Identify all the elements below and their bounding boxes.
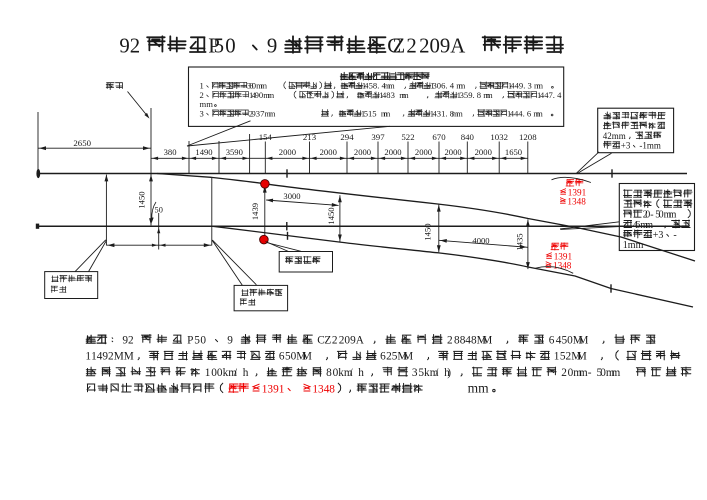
- svg-text:380: 380: [164, 147, 177, 157]
- svg-text:2000: 2000: [384, 147, 401, 157]
- svg-text:2000: 2000: [320, 147, 337, 157]
- svg-text:+3: +3: [621, 140, 631, 150]
- svg-text:2000: 2000: [279, 147, 296, 157]
- svg-text:46mm: 46mm: [633, 220, 654, 231]
- svg-text:1490: 1490: [195, 147, 212, 157]
- svg-text:3: 3: [200, 108, 204, 118]
- svg-text:1431.8mm: 1431.8mm: [430, 108, 463, 118]
- svg-text:P50: P50: [187, 334, 206, 346]
- svg-text:154: 154: [259, 132, 273, 142]
- svg-text:1439: 1439: [250, 203, 260, 220]
- svg-text:1435: 1435: [514, 233, 524, 250]
- svg-text:42mm: 42mm: [603, 131, 626, 141]
- svg-text:1348: 1348: [567, 196, 586, 206]
- svg-text:670: 670: [432, 132, 446, 142]
- svg-text:397: 397: [371, 132, 385, 142]
- svg-text:1483 mm: 1483 mm: [379, 90, 409, 100]
- svg-text:-1mm: -1mm: [639, 140, 661, 150]
- svg-text:2000: 2000: [475, 147, 492, 157]
- svg-text:1650: 1650: [505, 147, 522, 157]
- svg-text:3000: 3000: [283, 191, 300, 201]
- svg-text:92: 92: [119, 35, 140, 58]
- svg-text:2650: 2650: [73, 138, 91, 148]
- svg-text:+3: +3: [653, 230, 664, 241]
- svg-text:P50: P50: [208, 35, 235, 58]
- svg-text:2000: 2000: [354, 147, 371, 157]
- svg-text:1348: 1348: [312, 383, 335, 395]
- svg-text:2000: 2000: [415, 147, 432, 157]
- svg-text:1490mm: 1490mm: [249, 90, 275, 100]
- svg-text:2937mm: 2937mm: [249, 108, 276, 118]
- svg-text:11492MM: 11492MM: [85, 351, 133, 363]
- svg-text:1450: 1450: [326, 207, 336, 224]
- svg-text:mm: mm: [468, 380, 490, 395]
- svg-text:625MM: 625MM: [380, 351, 413, 363]
- svg-text:650MM: 650MM: [279, 351, 312, 363]
- svg-text:4000: 4000: [472, 236, 489, 246]
- svg-text:80km/h: 80km/h: [326, 367, 364, 379]
- svg-text:2000: 2000: [445, 147, 462, 157]
- svg-text:CZ2209A: CZ2209A: [317, 334, 364, 346]
- svg-text:1450: 1450: [423, 223, 433, 240]
- svg-text:294: 294: [340, 132, 354, 142]
- svg-text:35km/h): 35km/h): [412, 367, 451, 379]
- svg-text:840: 840: [461, 132, 475, 142]
- svg-text:522: 522: [401, 132, 414, 142]
- svg-text:1515 mm: 1515 mm: [361, 108, 391, 118]
- svg-text:1450: 1450: [137, 191, 147, 208]
- svg-text:CZ2209A: CZ2209A: [387, 35, 465, 58]
- svg-text:1032: 1032: [490, 132, 508, 142]
- svg-text:1447.4: 1447.4: [537, 90, 562, 100]
- svg-text:28848MM: 28848MM: [447, 334, 492, 346]
- svg-text:152MM: 152MM: [554, 351, 587, 363]
- svg-text:9: 9: [267, 35, 277, 58]
- svg-text:mm: mm: [200, 99, 214, 109]
- svg-text:20mm-50mm: 20mm-50mm: [561, 367, 620, 379]
- svg-text:-: -: [673, 230, 676, 241]
- svg-text:3590: 3590: [226, 147, 243, 157]
- svg-text:92: 92: [122, 334, 134, 346]
- svg-text:100km/h: 100km/h: [205, 367, 249, 379]
- svg-text:9: 9: [227, 334, 233, 346]
- svg-text:1391: 1391: [262, 383, 285, 395]
- svg-text:1208: 1208: [519, 132, 537, 142]
